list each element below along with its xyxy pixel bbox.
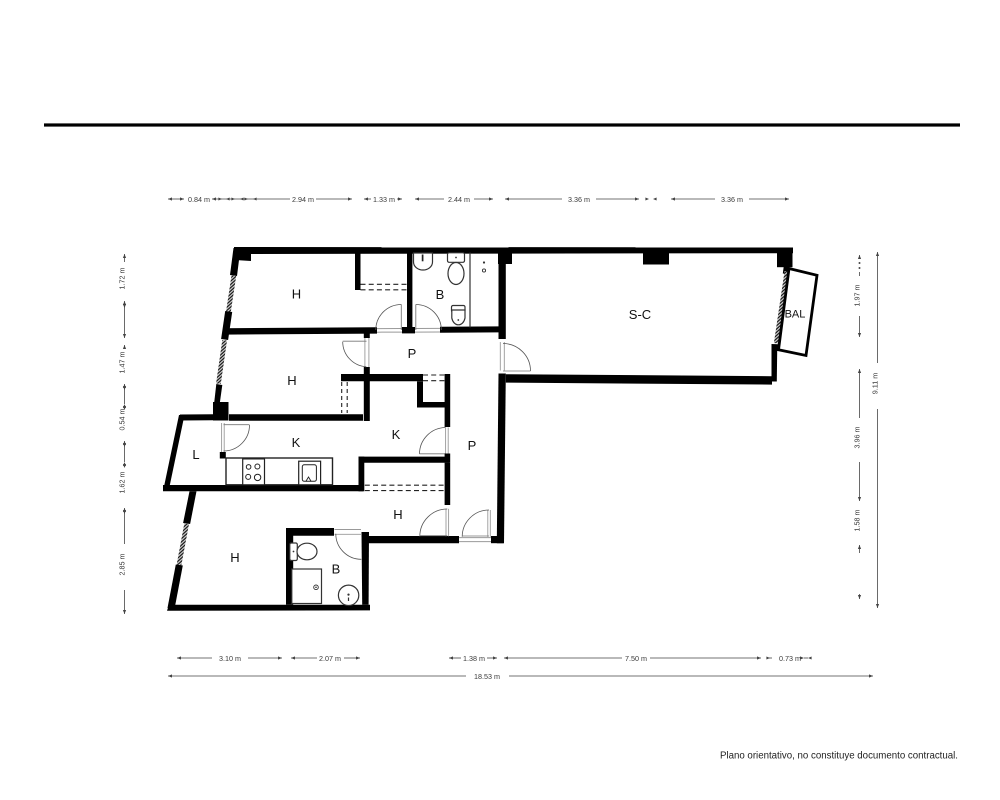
svg-text:Plano orientativo, no constitu: Plano orientativo, no constituye documen…	[720, 751, 958, 762]
svg-text:3.96 m: 3.96 m	[853, 427, 862, 449]
svg-text:1.38 m: 1.38 m	[463, 654, 485, 663]
svg-text:H: H	[292, 286, 301, 301]
svg-text:0.54 m: 0.54 m	[118, 409, 127, 431]
svg-text:3.36 m: 3.36 m	[721, 195, 743, 204]
svg-text:2.44 m: 2.44 m	[448, 195, 470, 204]
svg-text:1.47 m: 1.47 m	[118, 352, 127, 374]
svg-text:P: P	[408, 346, 417, 361]
svg-text:3.36 m: 3.36 m	[568, 195, 590, 204]
svg-text:9.11 m: 9.11 m	[871, 373, 880, 394]
svg-text:P: P	[468, 438, 477, 453]
svg-text:1.72 m: 1.72 m	[118, 268, 127, 290]
svg-text:2.94 m: 2.94 m	[292, 195, 314, 204]
svg-text:L: L	[192, 447, 199, 462]
svg-text:K: K	[292, 435, 301, 450]
svg-text:7.50 m: 7.50 m	[625, 654, 647, 663]
svg-text:B: B	[436, 287, 445, 302]
svg-text:H: H	[287, 373, 296, 388]
svg-text:H: H	[230, 550, 239, 565]
svg-text:B: B	[332, 562, 341, 577]
svg-text:18.53 m: 18.53 m	[474, 672, 500, 681]
svg-text:2.07 m: 2.07 m	[319, 654, 341, 663]
svg-text:1.97 m: 1.97 m	[853, 285, 862, 307]
svg-text:0.84 m: 0.84 m	[188, 195, 210, 204]
svg-text:K: K	[392, 427, 401, 442]
svg-text:3.10 m: 3.10 m	[219, 654, 241, 663]
svg-text:2.85 m: 2.85 m	[118, 554, 127, 576]
svg-text:1.33 m: 1.33 m	[373, 195, 395, 204]
svg-text:H: H	[393, 507, 402, 522]
svg-text:1.62 m: 1.62 m	[118, 472, 127, 494]
svg-text:S-C: S-C	[629, 307, 651, 322]
svg-text:0.73 m: 0.73 m	[779, 654, 801, 663]
svg-text:BAL: BAL	[785, 309, 806, 321]
svg-text:1.58 m: 1.58 m	[853, 510, 862, 532]
